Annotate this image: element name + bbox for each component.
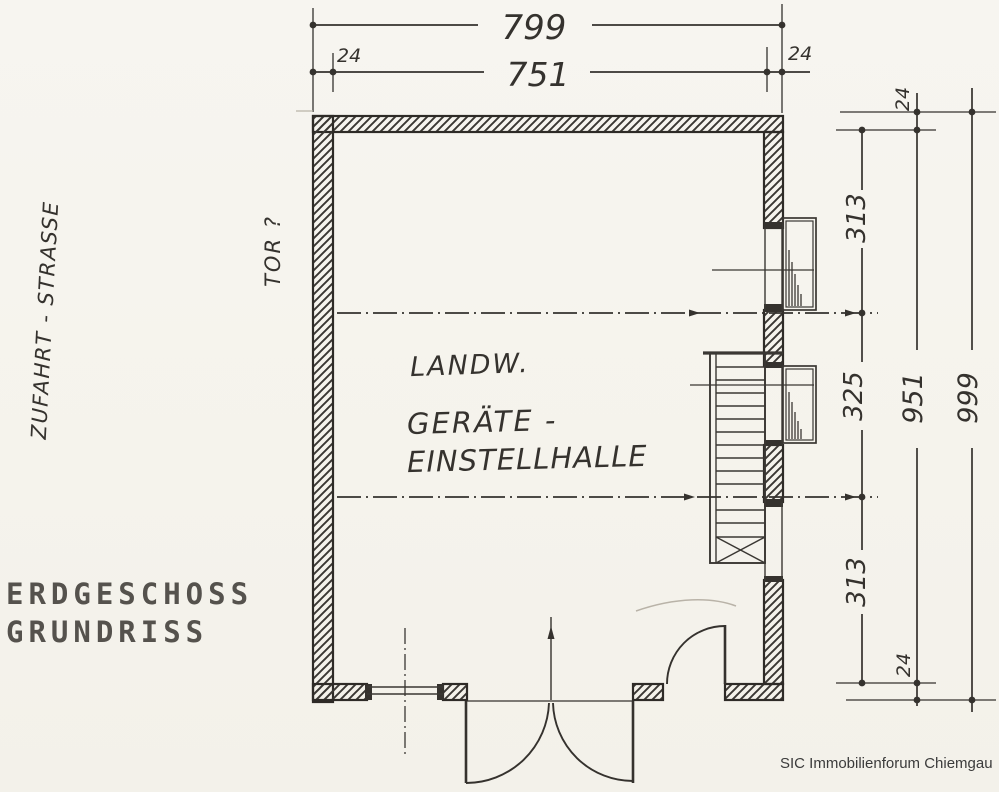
plan-title-line1: ERDGESCHOSS — [6, 577, 253, 611]
wall-left — [313, 116, 333, 702]
plan-title-line2: GRUNDRISS — [6, 615, 208, 649]
pencil-sketch-line — [636, 600, 736, 611]
dim-label-right-seg-middle: 325 — [840, 361, 868, 431]
gate-swing-right — [553, 703, 633, 781]
dim-label-inner-width: 751 — [488, 55, 588, 94]
dim-label-right-inner-height: 951 — [898, 358, 928, 438]
floorplan-page: { "document": { "title_line1": "ERDGESCH… — [0, 0, 999, 792]
single-door — [636, 600, 736, 684]
dim-label-right-wall-top: 24 — [892, 79, 914, 119]
dim-label-right-seg-bottom: 313 — [843, 547, 871, 617]
wall-right-seg3 — [764, 445, 783, 502]
dim-label-right-seg-top: 313 — [843, 183, 871, 253]
wall-bottom-pier1 — [443, 684, 467, 700]
gate-center-arrow — [548, 626, 555, 639]
wall-bottom-seg2 — [725, 684, 783, 700]
wall-right-seg4 — [764, 580, 783, 684]
wall-right-seg2 — [764, 310, 783, 366]
bay-upper-ramp-lines — [789, 250, 801, 306]
footer-credit: SIC Immobilienforum Chiemgau — [780, 755, 993, 772]
wall-top — [313, 116, 783, 132]
gate-swing-left — [466, 703, 549, 783]
stair-treads — [716, 367, 765, 537]
wall-bottom-seg1 — [313, 684, 367, 700]
door-swing — [667, 626, 725, 684]
dim-label-wall-left: 24 — [337, 45, 361, 67]
right-bay-lower — [783, 366, 816, 443]
stair-cross-brace — [716, 537, 765, 563]
dim-label-outer-width: 799 — [484, 8, 584, 48]
dim-label-right-wall-bottom: 24 — [893, 645, 915, 685]
dim-label-wall-right: 24 — [788, 43, 812, 65]
bay-lower-ramp-lines — [789, 392, 801, 439]
wall-bottom-pier2 — [633, 684, 663, 700]
double-gate — [466, 617, 633, 783]
plan-title: ERDGESCHOSSGRUNDRISS — [6, 575, 253, 651]
wall-right-seg1 — [764, 132, 783, 228]
hall-label-line3: EINSTELLHALLE — [407, 439, 648, 479]
dim-label-right-outer-height: 999 — [953, 358, 983, 438]
hall-label-line1: LANDW. — [409, 348, 530, 383]
right-wall-openings — [765, 228, 782, 580]
hall-label-line2: GERÄTE - — [407, 403, 558, 441]
right-bay-upper — [783, 218, 816, 310]
gate-label: TOR ? — [260, 196, 286, 306]
